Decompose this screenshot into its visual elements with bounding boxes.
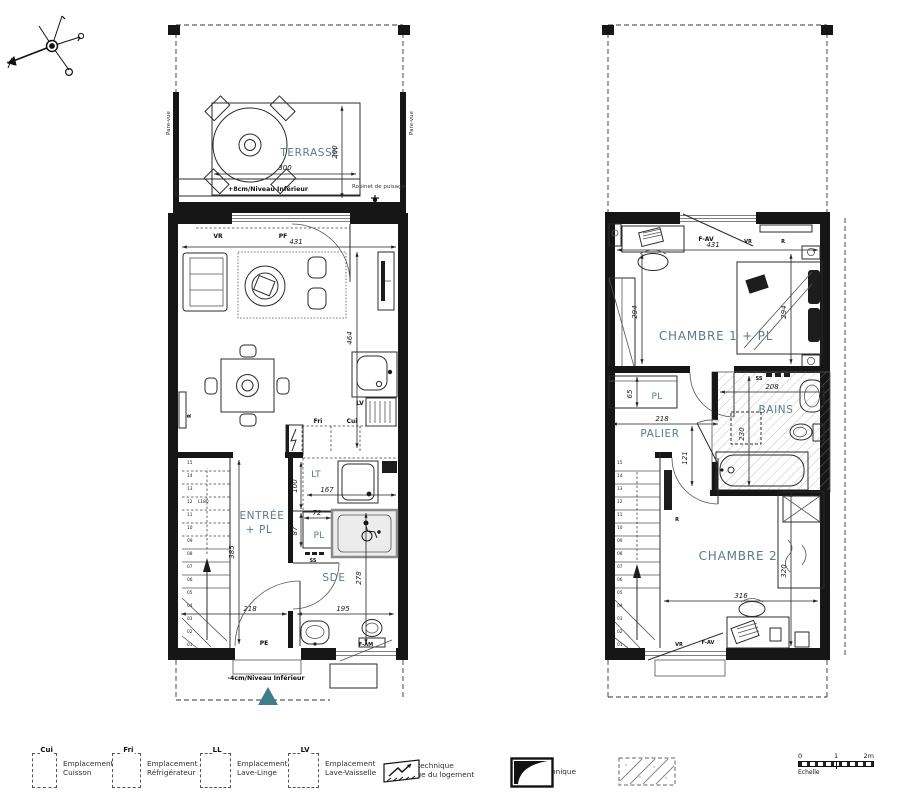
svg-text:VR: VR: [675, 642, 683, 648]
tap-icon: [371, 195, 379, 202]
dining-table: [205, 345, 289, 426]
svg-text:07: 07: [617, 564, 623, 570]
svg-text:14: 14: [617, 473, 623, 479]
gaine-block: [382, 461, 397, 473]
svg-text:R: R: [187, 414, 193, 418]
svg-text:06: 06: [187, 577, 193, 583]
svg-text:09: 09: [617, 538, 623, 544]
svg-text:ENTRÉE: ENTRÉE: [239, 509, 284, 522]
svg-text:LV: LV: [356, 400, 364, 407]
sofa: [183, 253, 227, 311]
svg-text:65: 65: [626, 389, 634, 398]
svg-text:07: 07: [187, 564, 193, 570]
legend-item-cuisson: Cui EmplacementCuisson: [32, 753, 113, 788]
svg-text:PALIER: PALIER: [640, 428, 679, 440]
svg-text:PL: PL: [651, 392, 662, 402]
svg-text:11: 11: [187, 512, 193, 518]
lave-vaisselle-symbol-icon: LV: [288, 753, 319, 788]
compass-rose-icon: [7, 16, 84, 75]
staircase-upper: 01 02 03 04 05 06 07 08 09 10 11 12 13 1…: [615, 460, 660, 648]
bains-room: BAINS 208 230 SS: [697, 372, 830, 496]
svg-text:CHAMBRE 2: CHAMBRE 2: [699, 549, 778, 563]
svg-text:F-AM: F-AM: [359, 642, 373, 648]
radiator-chambre1: R: [760, 225, 812, 245]
svg-text:385: 385: [228, 545, 236, 559]
entrance-marker: [258, 687, 278, 705]
svg-text:VR: VR: [213, 233, 223, 240]
svg-text:+ PL: + PL: [246, 524, 273, 536]
terrace: TERRASSE 300 200 +8cm/Niveau Inférieur R…: [176, 96, 406, 213]
svg-text:14: 14: [187, 473, 193, 479]
electrical-panel: [286, 425, 303, 455]
sejour-dim-width: 431: [289, 238, 302, 246]
washbasin: [301, 621, 329, 646]
window-f-am: F-AM: [336, 640, 396, 661]
electrical-space-icon: [383, 759, 421, 784]
legend-item-faux-plafond: Faux-plafondSoffite: [618, 757, 671, 778]
desk-chambre2: [727, 599, 809, 649]
svg-text:R: R: [781, 239, 785, 245]
lt-space: LT 100 167: [291, 461, 397, 509]
svg-text:10: 10: [187, 525, 193, 531]
svg-text:06: 06: [617, 577, 623, 583]
desk-chambre1: [609, 224, 684, 271]
legend: Cui EmplacementCuisson Fri EmplacementRé…: [0, 745, 917, 800]
svg-text:294: 294: [631, 305, 639, 318]
dishwasher: LV: [356, 398, 396, 426]
poufs: [308, 257, 326, 309]
legend-item-gaine: Gaine technique: [510, 757, 576, 776]
svg-text:10: 10: [617, 525, 623, 531]
kitchen-sink: [352, 352, 397, 397]
svg-text:Cui: Cui: [347, 418, 358, 425]
legend-item-lave-vaisselle: LV EmplacementLave-Vaisselle: [288, 753, 376, 788]
svg-text:195: 195: [336, 605, 350, 613]
ground-level-note: -4cm/Niveau Inférieur: [227, 674, 305, 682]
scale-bar: 0 1 2m Echelle: [798, 752, 874, 776]
svg-text:Fri: Fri: [314, 418, 323, 425]
washing-machine: [338, 461, 378, 503]
svg-text:320: 320: [780, 564, 788, 578]
pare-vue-right-label: Pare-vue: [409, 110, 415, 135]
svg-text:SS: SS: [310, 558, 317, 564]
svg-text:13: 13: [187, 486, 193, 492]
svg-text:LT: LT: [311, 470, 321, 480]
lave-linge-symbol-icon: LL: [200, 753, 231, 788]
legend-item-refrigerateur: Fri EmplacementRéfrigérateur: [112, 753, 197, 788]
svg-text:72: 72: [313, 509, 322, 517]
sejour-dim-height: 464: [346, 331, 354, 344]
svg-text:VR: VR: [744, 239, 752, 245]
svg-text:03: 03: [617, 616, 623, 622]
svg-text:208: 208: [765, 383, 779, 391]
svg-text:87: 87: [291, 526, 299, 535]
svg-text:SS: SS: [756, 376, 763, 382]
shower: [332, 510, 397, 557]
legend-item-electrical: Espace techniqueélectrique du logement: [383, 759, 474, 779]
svg-text:100: 100: [291, 479, 299, 493]
exterior-step: [330, 664, 377, 688]
faux-plafond-icon: [618, 757, 676, 786]
door-pf: PF: [279, 224, 350, 282]
gaine-technique-icon: [510, 757, 554, 788]
svg-text:15: 15: [187, 460, 193, 466]
svg-text:F-AV: F-AV: [702, 640, 715, 646]
terrace-dim-height: 200: [331, 145, 339, 159]
floor-plan-sheet: Pare-vue Pare-vue TERRASSE 300 200: [0, 0, 917, 800]
tap-label: Robinet de puisage: [352, 184, 406, 190]
pare-vue-left-label: Pare-vue: [166, 110, 172, 135]
radiator-sejour: R: [179, 392, 193, 428]
svg-text:PF: PF: [279, 233, 288, 240]
svg-text:230: 230: [738, 427, 746, 441]
svg-text:01: 01: [187, 642, 193, 648]
closet-pl-upper: PL 65: [609, 376, 677, 408]
cuisson-symbol-icon: Cui: [32, 753, 57, 788]
chambre1-label: CHAMBRE 1 + PL: [659, 329, 773, 343]
svg-text:08: 08: [187, 551, 193, 557]
svg-text:121: 121: [681, 451, 689, 464]
svg-text:01: 01: [617, 642, 623, 648]
property-lines: [168, 25, 410, 700]
svg-text:02: 02: [187, 629, 193, 635]
towel-dryer-ticks: [305, 552, 324, 555]
svg-text:218: 218: [243, 605, 257, 613]
svg-text:02: 02: [617, 629, 623, 635]
chambre1-dim-width: 431: [706, 241, 719, 249]
terrace-dim-width: 300: [278, 164, 292, 172]
terrace-level-note: +8cm/Niveau Inférieur: [228, 185, 309, 193]
svg-text:167: 167: [320, 486, 334, 494]
svg-text:278: 278: [355, 571, 363, 585]
svg-text:05: 05: [617, 590, 623, 596]
tv-unit: [378, 252, 394, 310]
svg-text:316: 316: [734, 592, 748, 600]
rug-coffee-table: [238, 252, 346, 318]
closet-pl-ground: 72 87 PL SS: [291, 509, 332, 564]
svg-text:12: 12: [617, 499, 623, 505]
svg-text:15: 15: [617, 460, 623, 466]
svg-text:03: 03: [187, 616, 193, 622]
svg-text:294: 294: [780, 305, 788, 318]
svg-text:11: 11: [617, 512, 623, 518]
plans-drawing: Pare-vue Pare-vue TERRASSE 300 200: [0, 0, 917, 745]
appliance-zone: Fri Cui: [302, 418, 397, 452]
window-f-av-bottom: VR F-AV: [645, 633, 726, 676]
svg-text:04: 04: [187, 603, 193, 609]
svg-text:05: 05: [187, 590, 193, 596]
svg-text:R: R: [675, 517, 679, 523]
refrigerateur-symbol-icon: Fri: [112, 753, 141, 788]
staircase-ground: 01 02 03 04 05 06 07 08 09 10 11 12 13 1…: [182, 458, 230, 648]
svg-text:04: 04: [617, 603, 623, 609]
svg-text:09: 09: [187, 538, 193, 544]
svg-text:PL: PL: [313, 531, 324, 541]
upper-floor-plan: F-AV VR R 431: [602, 25, 845, 697]
property-lines-upper: [602, 25, 845, 697]
entree-room: ENTRÉE + PL 385 218: [181, 460, 287, 644]
svg-text:BAINS: BAINS: [758, 404, 793, 416]
legend-item-lave-linge: LL EmplacementLave-Linge: [200, 753, 287, 788]
svg-text:13: 13: [617, 486, 623, 492]
svg-text:SDE: SDE: [322, 572, 345, 584]
svg-text:08: 08: [617, 551, 623, 557]
ground-floor-plan: Pare-vue Pare-vue TERRASSE 300 200: [166, 25, 415, 705]
svg-text:218: 218: [655, 415, 669, 423]
svg-text:L180: L180: [198, 499, 209, 505]
svg-text:12: 12: [187, 499, 193, 505]
svg-text:PE: PE: [260, 640, 269, 647]
